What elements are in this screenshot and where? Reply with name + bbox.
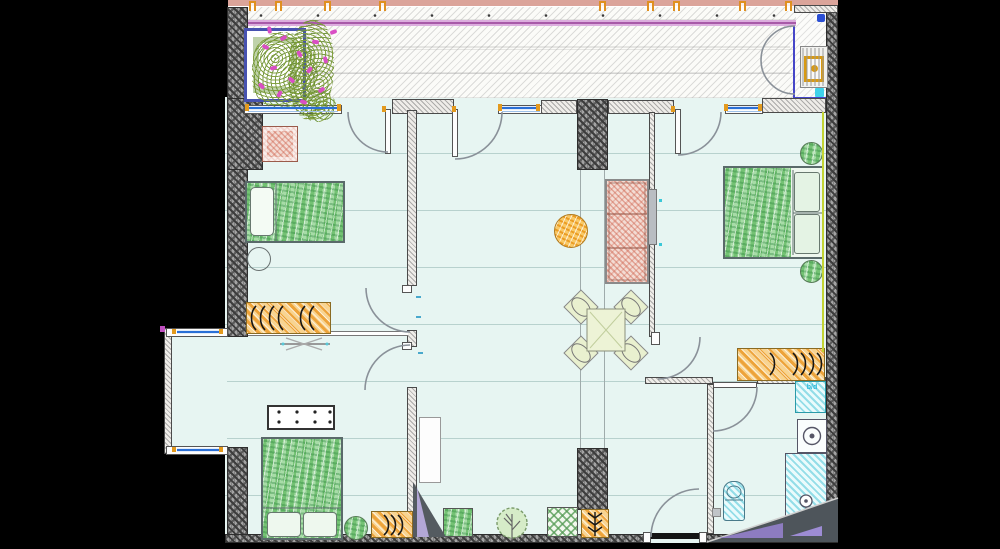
console-table-dots xyxy=(277,410,331,423)
sofa-lines xyxy=(607,183,647,280)
ac-grille-lines xyxy=(803,48,823,86)
branch-plant-twigs xyxy=(588,512,602,536)
balcony-board-lines xyxy=(310,47,790,73)
toilet-lines xyxy=(725,486,743,500)
switch-ticks xyxy=(416,296,423,354)
hanger-symbols xyxy=(252,306,822,535)
railing-dots xyxy=(260,14,776,17)
washing-machine-drum xyxy=(804,428,821,445)
window-glazing xyxy=(177,108,761,450)
ceiling-fan-symbol xyxy=(280,338,330,350)
window-ticks xyxy=(172,104,762,452)
door-swing-arcs xyxy=(348,26,795,537)
tree-symbol xyxy=(497,508,527,538)
linework-overlay xyxy=(0,0,1000,549)
bed-frame-lines xyxy=(263,170,822,508)
dining-set xyxy=(564,290,648,370)
floor-plan-canvas: b/d xyxy=(0,0,1000,549)
section-wedges xyxy=(413,482,838,542)
